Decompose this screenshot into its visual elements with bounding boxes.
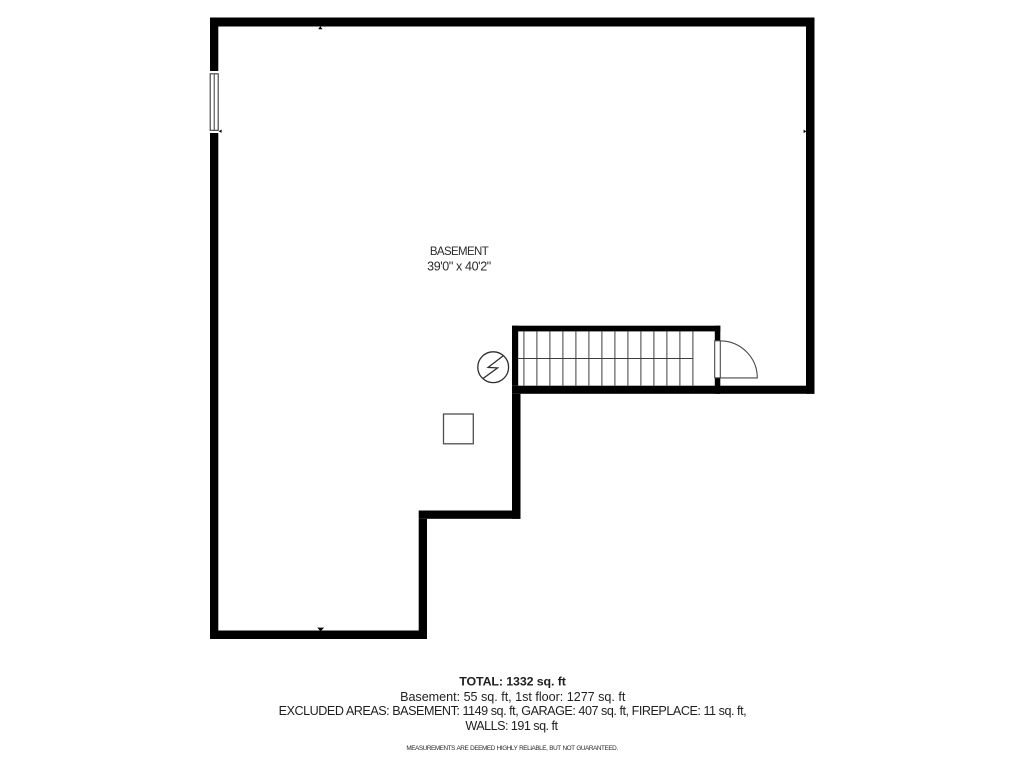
svg-text:EXCLUDED AREAS: BASEMENT: 1149: EXCLUDED AREAS: BASEMENT: 1149 sq. ft, G… (279, 704, 747, 718)
svg-text:TOTAL: 1332 sq. ft: TOTAL: 1332 sq. ft (459, 675, 566, 689)
svg-text:39'0" x 40'2": 39'0" x 40'2" (427, 260, 491, 274)
svg-text:Basement: 55 sq. ft, 1st floor: Basement: 55 sq. ft, 1st floor: 1277 sq.… (400, 690, 626, 704)
svg-text:BASEMENT: BASEMENT (430, 246, 489, 258)
svg-text:MEASUREMENTS ARE DEEMED HIGHLY: MEASUREMENTS ARE DEEMED HIGHLY RELIABLE,… (406, 745, 618, 752)
svg-text:WALLS: 191 sq. ft: WALLS: 191 sq. ft (465, 719, 558, 733)
